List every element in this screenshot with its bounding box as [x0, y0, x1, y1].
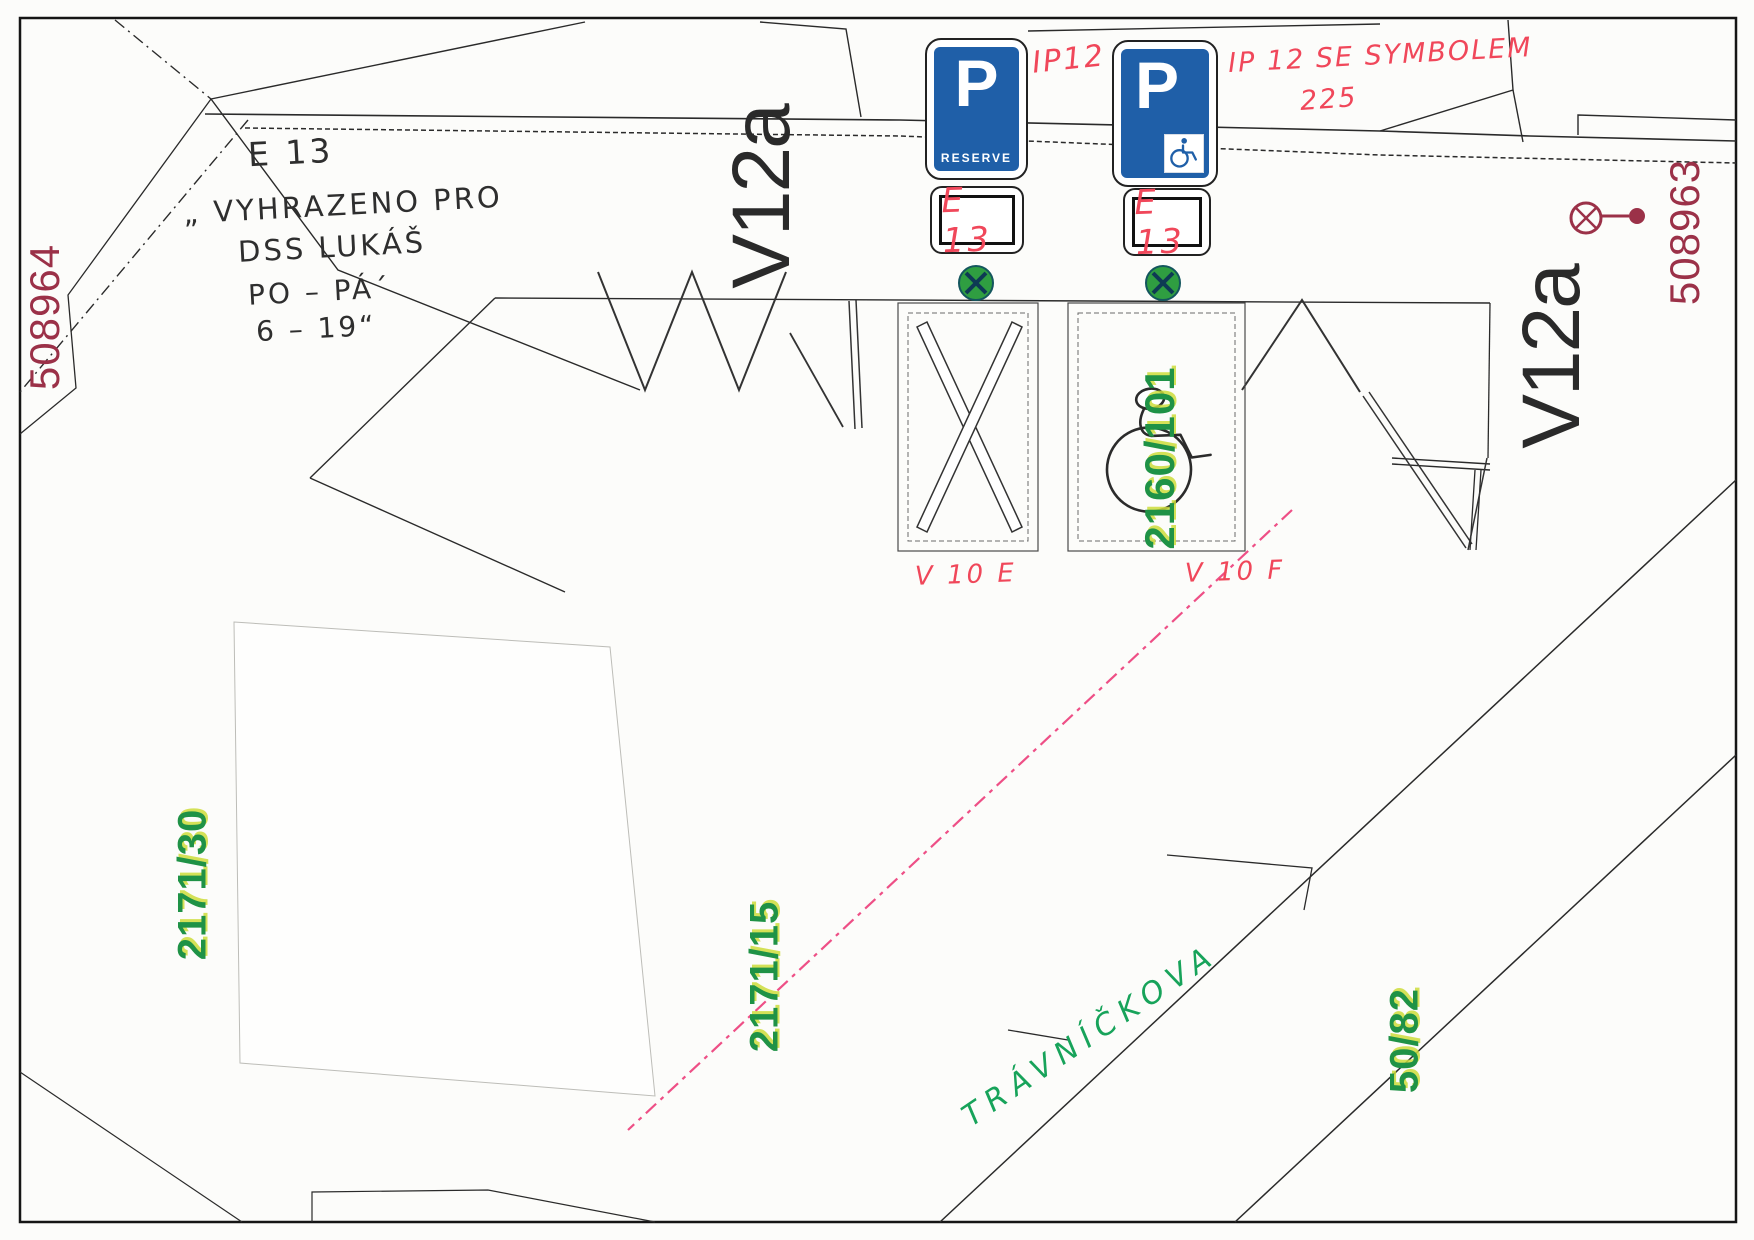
lot-boundary — [495, 298, 1490, 303]
plate-frame: E 13 — [1132, 197, 1202, 247]
signpost-marker-icon — [1146, 266, 1180, 300]
street-edge — [940, 480, 1736, 1222]
plate-code: E 13 — [941, 179, 1014, 261]
marking-label-v10f: V 10 F — [1185, 555, 1286, 588]
parking-sign-face: P — [1121, 49, 1209, 178]
note-e13-line: E 13 — [247, 131, 334, 174]
additional-plate-e13: E 13 — [930, 186, 1024, 254]
survey-number-right: 508963 — [1661, 122, 1709, 342]
parcel-line — [312, 1190, 655, 1222]
parcel-line — [211, 22, 585, 99]
lot-boundary — [310, 478, 565, 592]
marking-label-v12a-right: V12a — [1505, 217, 1599, 497]
parking-sign-face: P RESERVE — [934, 47, 1019, 171]
lot-boundary — [1488, 303, 1490, 458]
parcel-outline — [234, 622, 655, 1096]
zigzag-marking-left — [856, 300, 862, 428]
boundary-dashdot — [115, 20, 211, 99]
note-hours-line: 6 – 19“ — [255, 309, 377, 348]
plate-frame: E 13 — [939, 195, 1015, 245]
parcel-number-50-82: 50/82 — [1383, 971, 1428, 1111]
marking-label-v10e: V 10 E — [915, 558, 1018, 592]
parcel-number-2160-101: 2160/101 — [1136, 313, 1184, 603]
survey-number-left: 508964 — [21, 207, 69, 427]
parking-sign-ip12-disabled: P — [1112, 40, 1218, 187]
annotation-225: 225 — [1299, 82, 1359, 117]
parcel-line — [1513, 90, 1523, 142]
parking-sign-ip12: P RESERVE — [925, 38, 1028, 180]
kerb-line — [1167, 855, 1312, 910]
wheelchair-symbol-box — [1164, 134, 1204, 173]
parcel-number-2171-30: 2171/30 — [171, 775, 216, 995]
parcel-line — [1028, 24, 1380, 31]
reserve-caption: RESERVE — [934, 151, 1019, 165]
zigzag-marking-right — [1363, 396, 1466, 548]
street-edge — [1235, 755, 1736, 1222]
kerb-step — [1578, 115, 1736, 135]
plate-code: E 13 — [1134, 181, 1201, 263]
parcel-number-2171-15: 2171/15 — [743, 867, 788, 1087]
plan-linework — [0, 0, 1754, 1240]
boundary-pink-dashdot — [628, 510, 1292, 1130]
signpost-marker-icon — [959, 266, 993, 300]
zigzag-marking-left — [790, 333, 843, 427]
zigzag-marking-right — [1242, 300, 1360, 392]
parking-p-glyph: P — [934, 45, 1019, 121]
parcel-line — [20, 1072, 242, 1222]
kerb-line — [1392, 464, 1490, 470]
zigzag-marking-left — [849, 301, 855, 429]
additional-plate-e13: E 13 — [1123, 188, 1211, 256]
site-plan: P RESERVE E 13 P E 13 E 13 „ VYHRAZEN — [0, 0, 1754, 1240]
wheelchair-icon — [1165, 135, 1201, 170]
marking-label-v12a-left: V12a — [715, 67, 809, 327]
parking-p-glyph: P — [1121, 47, 1223, 123]
